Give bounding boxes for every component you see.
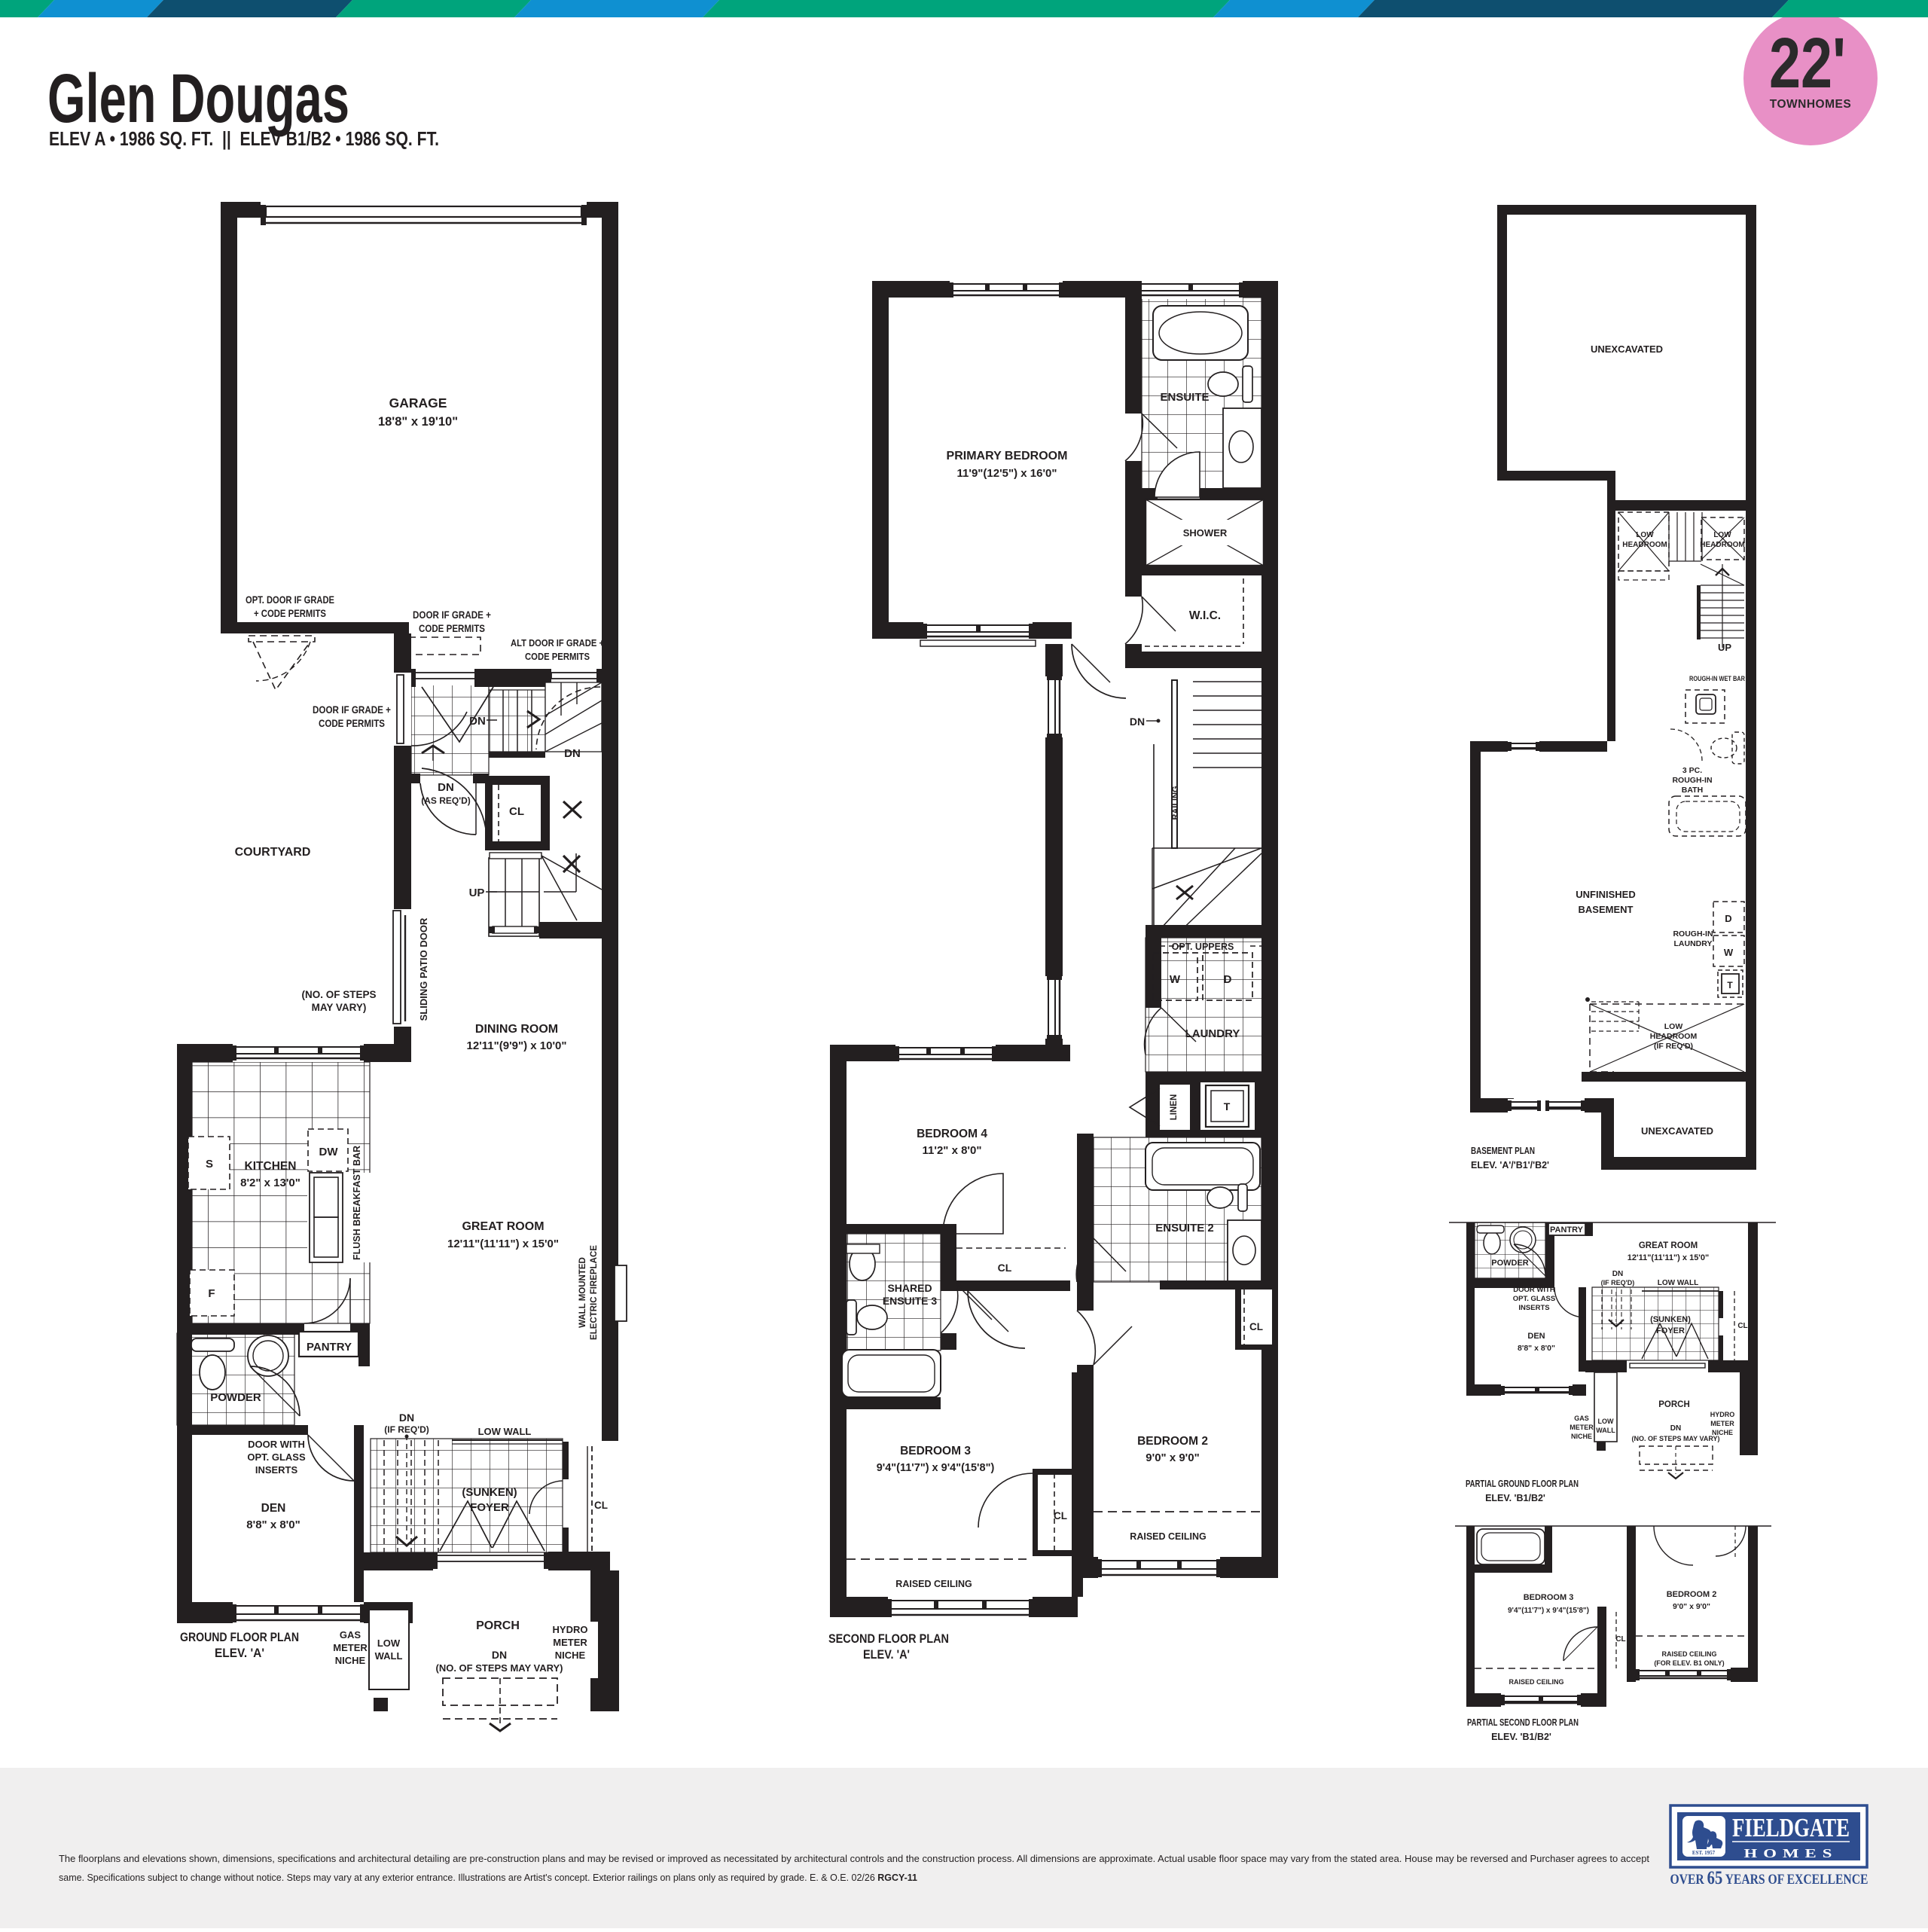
svg-text:ALT DOOR IF GRADE +: ALT DOOR IF GRADE +: [511, 637, 604, 649]
svg-text:CL: CL: [509, 805, 524, 818]
svg-text:BEDROOM 3: BEDROOM 3: [1524, 1593, 1574, 1602]
svg-text:PORCH: PORCH: [476, 1619, 520, 1632]
svg-text:SLIDING PATIO DOOR: SLIDING PATIO DOOR: [418, 917, 429, 1021]
svg-text:D: D: [1224, 973, 1232, 986]
svg-text:The floorplans and elevations: The floorplans and elevations shown, dim…: [59, 1853, 1649, 1864]
svg-text:(SUNKEN): (SUNKEN): [1650, 1315, 1691, 1324]
svg-text:(SUNKEN): (SUNKEN): [462, 1486, 517, 1499]
svg-text:T: T: [1224, 1100, 1231, 1113]
svg-text:ROUGH-IN: ROUGH-IN: [1672, 776, 1712, 785]
svg-text:(NO. OF STEPS MAY VARY): (NO. OF STEPS MAY VARY): [1631, 1435, 1719, 1442]
svg-text:8'2" x 13'0": 8'2" x 13'0": [240, 1177, 300, 1189]
svg-text:HEADROOM: HEADROOM: [1622, 541, 1667, 549]
svg-text:BEDROOM 2: BEDROOM 2: [1667, 1590, 1717, 1599]
svg-text:LOW: LOW: [1636, 531, 1654, 539]
svg-text:UNFINISHED: UNFINISHED: [1576, 889, 1635, 900]
svg-text:(AS REQ'D): (AS REQ'D): [421, 795, 471, 806]
svg-text:UNEXCAVATED: UNEXCAVATED: [1591, 343, 1663, 355]
svg-text:DN: DN: [1130, 716, 1145, 728]
svg-text:9'4"(11'7") x 9'4"(15'8"): 9'4"(11'7") x 9'4"(15'8"): [1508, 1607, 1589, 1615]
svg-text:OPT. GLASS: OPT. GLASS: [1513, 1295, 1555, 1303]
svg-text:DOOR WITH: DOOR WITH: [1513, 1286, 1555, 1294]
svg-text:9'0" x 9'0": 9'0" x 9'0": [1146, 1451, 1199, 1464]
svg-text:GREAT ROOM: GREAT ROOM: [1639, 1241, 1698, 1250]
svg-text:MAY VARY): MAY VARY): [312, 1002, 367, 1013]
svg-text:8'8" x 8'0": 8'8" x 8'0": [246, 1518, 300, 1531]
svg-text:DN: DN: [1670, 1424, 1681, 1433]
svg-text:FOYER: FOYER: [470, 1501, 509, 1514]
svg-text:ELEV. 'A'/'B1'/'B2': ELEV. 'A'/'B1'/'B2': [1471, 1159, 1549, 1170]
svg-text:18'8" x 19'10": 18'8" x 19'10": [378, 415, 458, 429]
svg-text:LOW: LOW: [1598, 1418, 1614, 1425]
svg-text:F: F: [208, 1287, 215, 1300]
svg-text:BATH: BATH: [1682, 786, 1703, 795]
svg-text:LOW: LOW: [377, 1637, 401, 1649]
svg-text:UP: UP: [469, 887, 485, 899]
svg-text:9'4"(11'7") x 9'4"(15'8"): 9'4"(11'7") x 9'4"(15'8"): [877, 1462, 995, 1474]
svg-text:D: D: [1725, 913, 1731, 924]
svg-text:PORCH: PORCH: [1658, 1400, 1690, 1409]
svg-text:RAISED CEILING: RAISED CEILING: [895, 1579, 972, 1589]
svg-text:DOOR IF GRADE +: DOOR IF GRADE +: [413, 609, 491, 621]
svg-text:LAUNDRY: LAUNDRY: [1674, 939, 1713, 948]
svg-text:ROUGH-IN WET BAR: ROUGH-IN WET BAR: [1689, 675, 1745, 683]
svg-text:GROUND FLOOR PLAN: GROUND FLOOR PLAN: [180, 1630, 299, 1644]
svg-text:DOOR WITH: DOOR WITH: [248, 1439, 305, 1450]
svg-text:CL: CL: [1054, 1510, 1067, 1521]
svg-text:PANTRY: PANTRY: [1550, 1225, 1584, 1235]
svg-text:BEDROOM 4: BEDROOM 4: [917, 1128, 987, 1140]
svg-text:ENSUITE 3: ENSUITE 3: [883, 1295, 938, 1307]
svg-text:DN: DN: [438, 781, 454, 794]
svg-text:+ CODE PERMITS: + CODE PERMITS: [254, 607, 326, 619]
svg-text:HOMES: HOMES: [1744, 1846, 1838, 1860]
svg-text:CL: CL: [594, 1500, 608, 1511]
svg-text:KITCHEN: KITCHEN: [245, 1160, 297, 1173]
svg-text:12'11"(9'9") x 10'0": 12'11"(9'9") x 10'0": [467, 1039, 567, 1052]
svg-text:LOW WALL: LOW WALL: [1658, 1279, 1698, 1287]
svg-text:(IF REQ'D): (IF REQ'D): [384, 1424, 429, 1435]
svg-text:POWDER: POWDER: [210, 1391, 261, 1404]
svg-text:DN: DN: [492, 1649, 507, 1661]
svg-text:TOWNHOMES: TOWNHOMES: [1770, 98, 1851, 111]
svg-text:METER: METER: [1570, 1424, 1594, 1431]
svg-text:INSERTS: INSERTS: [255, 1464, 298, 1476]
svg-text:UP: UP: [1718, 642, 1731, 653]
svg-text:PRIMARY BEDROOM: PRIMARY BEDROOM: [947, 450, 1068, 462]
svg-text:EST. 1957: EST. 1957: [1692, 1850, 1716, 1856]
svg-text:S: S: [206, 1158, 213, 1170]
svg-text:SECOND FLOOR PLAN: SECOND FLOOR PLAN: [828, 1631, 949, 1646]
svg-text:POWDER: POWDER: [1491, 1259, 1529, 1268]
svg-text:ELEV. 'B1/B2': ELEV. 'B1/B2': [1485, 1493, 1545, 1503]
svg-text:12'11"(11'11") x 15'0": 12'11"(11'11") x 15'0": [1628, 1253, 1710, 1262]
svg-text:BASEMENT: BASEMENT: [1579, 904, 1634, 915]
svg-text:ENSUITE: ENSUITE: [1160, 391, 1209, 404]
svg-text:(IF REQ'D): (IF REQ'D): [1654, 1042, 1693, 1051]
svg-text:FIELDGATE: FIELDGATE: [1732, 1813, 1850, 1842]
svg-text:ELEV. 'B1/B2': ELEV. 'B1/B2': [1491, 1732, 1551, 1742]
svg-text:RAILING: RAILING: [1171, 786, 1180, 819]
svg-text:DW: DW: [319, 1146, 339, 1158]
svg-text:LOW: LOW: [1713, 531, 1731, 539]
svg-text:WALL: WALL: [375, 1650, 403, 1662]
svg-text:ELECTRIC FIREPLACE: ELECTRIC FIREPLACE: [590, 1245, 599, 1340]
svg-text:WALL: WALL: [1596, 1427, 1615, 1434]
svg-text:11'9"(12'5") x 16'0": 11'9"(12'5") x 16'0": [957, 467, 1057, 480]
svg-text:COURTYARD: COURTYARD: [235, 846, 311, 859]
svg-text:METER: METER: [1710, 1420, 1734, 1427]
svg-text:METER: METER: [553, 1637, 587, 1648]
svg-text:NICHE: NICHE: [1571, 1433, 1592, 1440]
svg-text:12'11"(11'11") x 15'0": 12'11"(11'11") x 15'0": [447, 1238, 559, 1250]
svg-text:DN: DN: [469, 715, 486, 728]
svg-text:DEN: DEN: [261, 1502, 286, 1515]
svg-text:CODE PERMITS: CODE PERMITS: [525, 651, 590, 662]
svg-text:CL: CL: [1249, 1321, 1263, 1332]
svg-text:GAS: GAS: [340, 1629, 361, 1641]
svg-text:ROUGH-IN: ROUGH-IN: [1673, 929, 1713, 939]
svg-text:DN: DN: [564, 747, 581, 760]
svg-text:ELEV. 'A': ELEV. 'A': [863, 1647, 910, 1662]
svg-text:OVER 65 YEARS OF EXCELLENCE: OVER 65 YEARS OF EXCELLENCE: [1670, 1868, 1869, 1888]
svg-text:same. Specifications subject t: same. Specifications subject to change w…: [59, 1872, 917, 1883]
svg-text:(NO. OF STEPS: (NO. OF STEPS: [301, 989, 376, 1000]
svg-text:OPT. DOOR IF GRADE: OPT. DOOR IF GRADE: [246, 594, 334, 606]
svg-text:(NO. OF STEPS MAY VARY): (NO. OF STEPS MAY VARY): [435, 1662, 563, 1674]
svg-text:DN: DN: [399, 1412, 414, 1424]
svg-text:ELEV. 'A': ELEV. 'A': [215, 1646, 264, 1660]
svg-text:NICHE: NICHE: [335, 1655, 366, 1666]
svg-text:Glen Dougas: Glen Dougas: [47, 60, 349, 137]
svg-text:OPT. GLASS: OPT. GLASS: [247, 1451, 306, 1463]
svg-text:W.I.C.: W.I.C.: [1189, 609, 1221, 622]
svg-text:HEADROOM: HEADROOM: [1650, 1032, 1698, 1041]
svg-text:T: T: [1727, 980, 1733, 990]
svg-text:HYDRO: HYDRO: [1710, 1411, 1735, 1418]
svg-text:PARTIAL GROUND FLOOR PLAN: PARTIAL GROUND FLOOR PLAN: [1466, 1478, 1579, 1489]
svg-text:HEADROOM: HEADROOM: [1700, 541, 1744, 549]
svg-text:DOOR IF GRADE +: DOOR IF GRADE +: [313, 704, 391, 716]
svg-text:11'2" x 8'0": 11'2" x 8'0": [923, 1144, 982, 1157]
svg-text:LOW WALL: LOW WALL: [478, 1426, 532, 1437]
svg-text:RAISED CEILING: RAISED CEILING: [1661, 1650, 1716, 1658]
svg-text:CL: CL: [1737, 1322, 1747, 1330]
svg-text:BEDROOM 2: BEDROOM 2: [1137, 1435, 1208, 1448]
svg-text:8'8" x 8'0": 8'8" x 8'0": [1518, 1344, 1555, 1353]
svg-text:RAISED CEILING: RAISED CEILING: [1130, 1531, 1206, 1542]
svg-text:LOW: LOW: [1664, 1022, 1683, 1031]
svg-text:UNEXCAVATED: UNEXCAVATED: [1641, 1125, 1713, 1137]
svg-text:BEDROOM 3: BEDROOM 3: [900, 1445, 971, 1457]
svg-text:ENSUITE 2: ENSUITE 2: [1155, 1222, 1214, 1235]
svg-text:SHARED: SHARED: [887, 1282, 932, 1294]
svg-text:DEN: DEN: [1527, 1332, 1545, 1341]
svg-text:ELEV A • 1986 SQ. FT. || ELE: ELEV A • 1986 SQ. FT. || ELEV B1/B2 • 19…: [49, 127, 439, 150]
svg-text:DN: DN: [1612, 1270, 1623, 1278]
svg-text:GREAT ROOM: GREAT ROOM: [462, 1220, 544, 1233]
svg-text:CL: CL: [1615, 1635, 1625, 1644]
svg-text:(FOR ELEV. B1 ONLY): (FOR ELEV. B1 ONLY): [1654, 1659, 1724, 1667]
svg-text:PARTIAL SECOND FLOOR PLAN: PARTIAL SECOND FLOOR PLAN: [1467, 1717, 1579, 1728]
svg-text:W: W: [1170, 973, 1181, 986]
svg-text:WALL MOUNTED: WALL MOUNTED: [578, 1257, 587, 1328]
svg-text:BASEMENT PLAN: BASEMENT PLAN: [1471, 1145, 1535, 1156]
svg-text:9'0" x 9'0": 9'0" x 9'0": [1673, 1602, 1710, 1611]
svg-text:LAUNDRY: LAUNDRY: [1185, 1027, 1240, 1040]
svg-text:FLUSH BREAKFAST BAR: FLUSH BREAKFAST BAR: [352, 1146, 362, 1260]
svg-text:NICHE: NICHE: [555, 1650, 586, 1661]
svg-text:(IF REQ'D): (IF REQ'D): [1601, 1279, 1635, 1286]
svg-text:DINING ROOM: DINING ROOM: [475, 1023, 558, 1036]
svg-text:GARAGE: GARAGE: [389, 395, 447, 411]
svg-text:22': 22': [1769, 23, 1846, 103]
svg-text:RAISED CEILING: RAISED CEILING: [1509, 1678, 1563, 1686]
svg-text:W: W: [1724, 947, 1734, 958]
svg-text:OPT. UPPERS: OPT. UPPERS: [1172, 942, 1234, 952]
svg-text:CODE PERMITS: CODE PERMITS: [419, 622, 485, 634]
svg-text:SHOWER: SHOWER: [1183, 527, 1228, 539]
svg-text:GAS: GAS: [1574, 1415, 1589, 1422]
svg-text:LINEN: LINEN: [1170, 1094, 1179, 1121]
svg-text:METER: METER: [333, 1642, 368, 1653]
svg-text:PANTRY: PANTRY: [307, 1341, 352, 1354]
svg-text:HYDRO: HYDRO: [553, 1624, 588, 1635]
svg-text:CODE PERMITS: CODE PERMITS: [319, 717, 385, 729]
svg-text:CL: CL: [998, 1262, 1012, 1274]
svg-text:INSERTS: INSERTS: [1518, 1304, 1549, 1312]
svg-text:3 PC.: 3 PC.: [1682, 766, 1702, 775]
svg-text:FOYER: FOYER: [1656, 1326, 1685, 1335]
